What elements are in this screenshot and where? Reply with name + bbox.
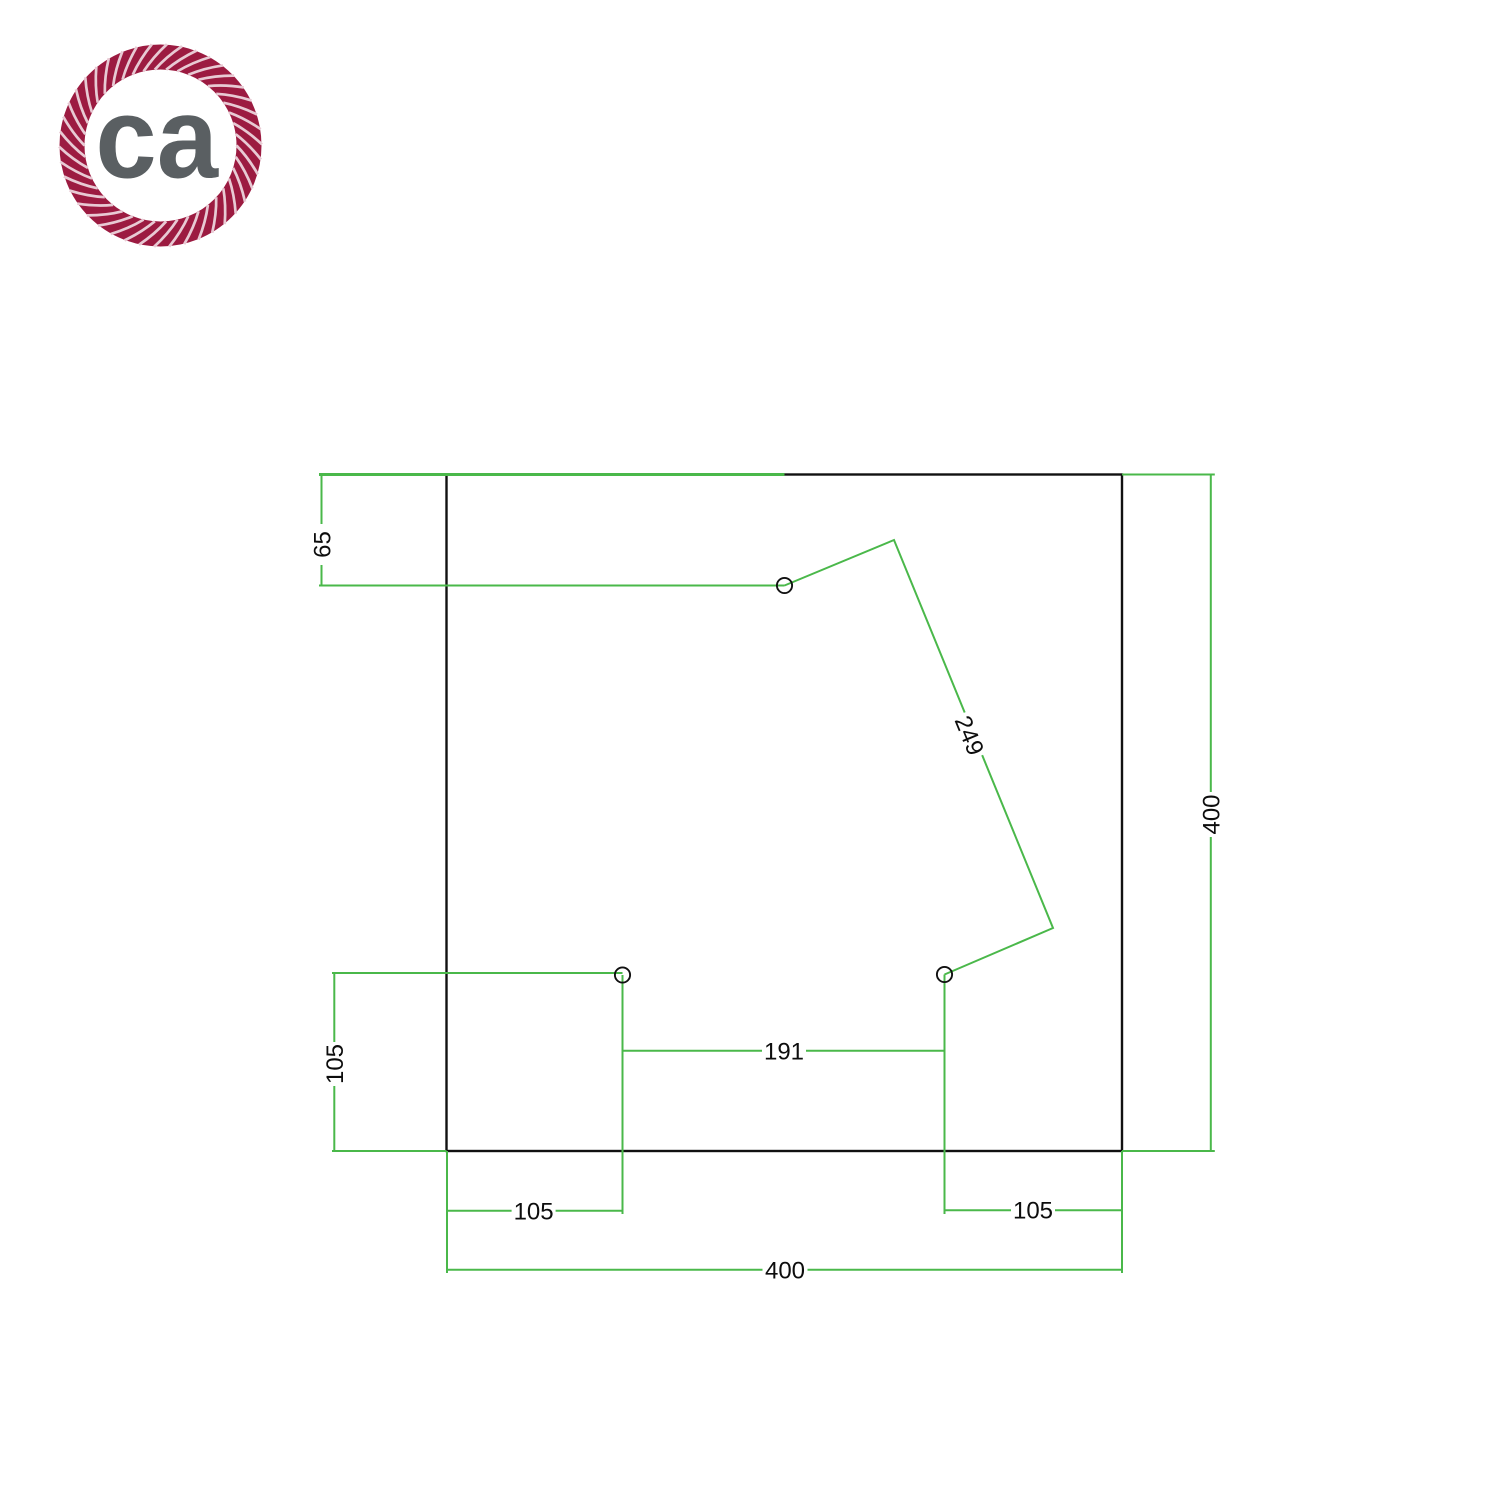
svg-text:ca: ca: [95, 73, 219, 202]
svg-text:400: 400: [1198, 794, 1225, 834]
svg-text:105: 105: [514, 1198, 554, 1225]
svg-text:65: 65: [310, 531, 337, 558]
svg-text:191: 191: [764, 1038, 804, 1065]
svg-text:400: 400: [765, 1257, 805, 1284]
svg-text:105: 105: [322, 1044, 349, 1084]
svg-text:105: 105: [1013, 1198, 1053, 1225]
